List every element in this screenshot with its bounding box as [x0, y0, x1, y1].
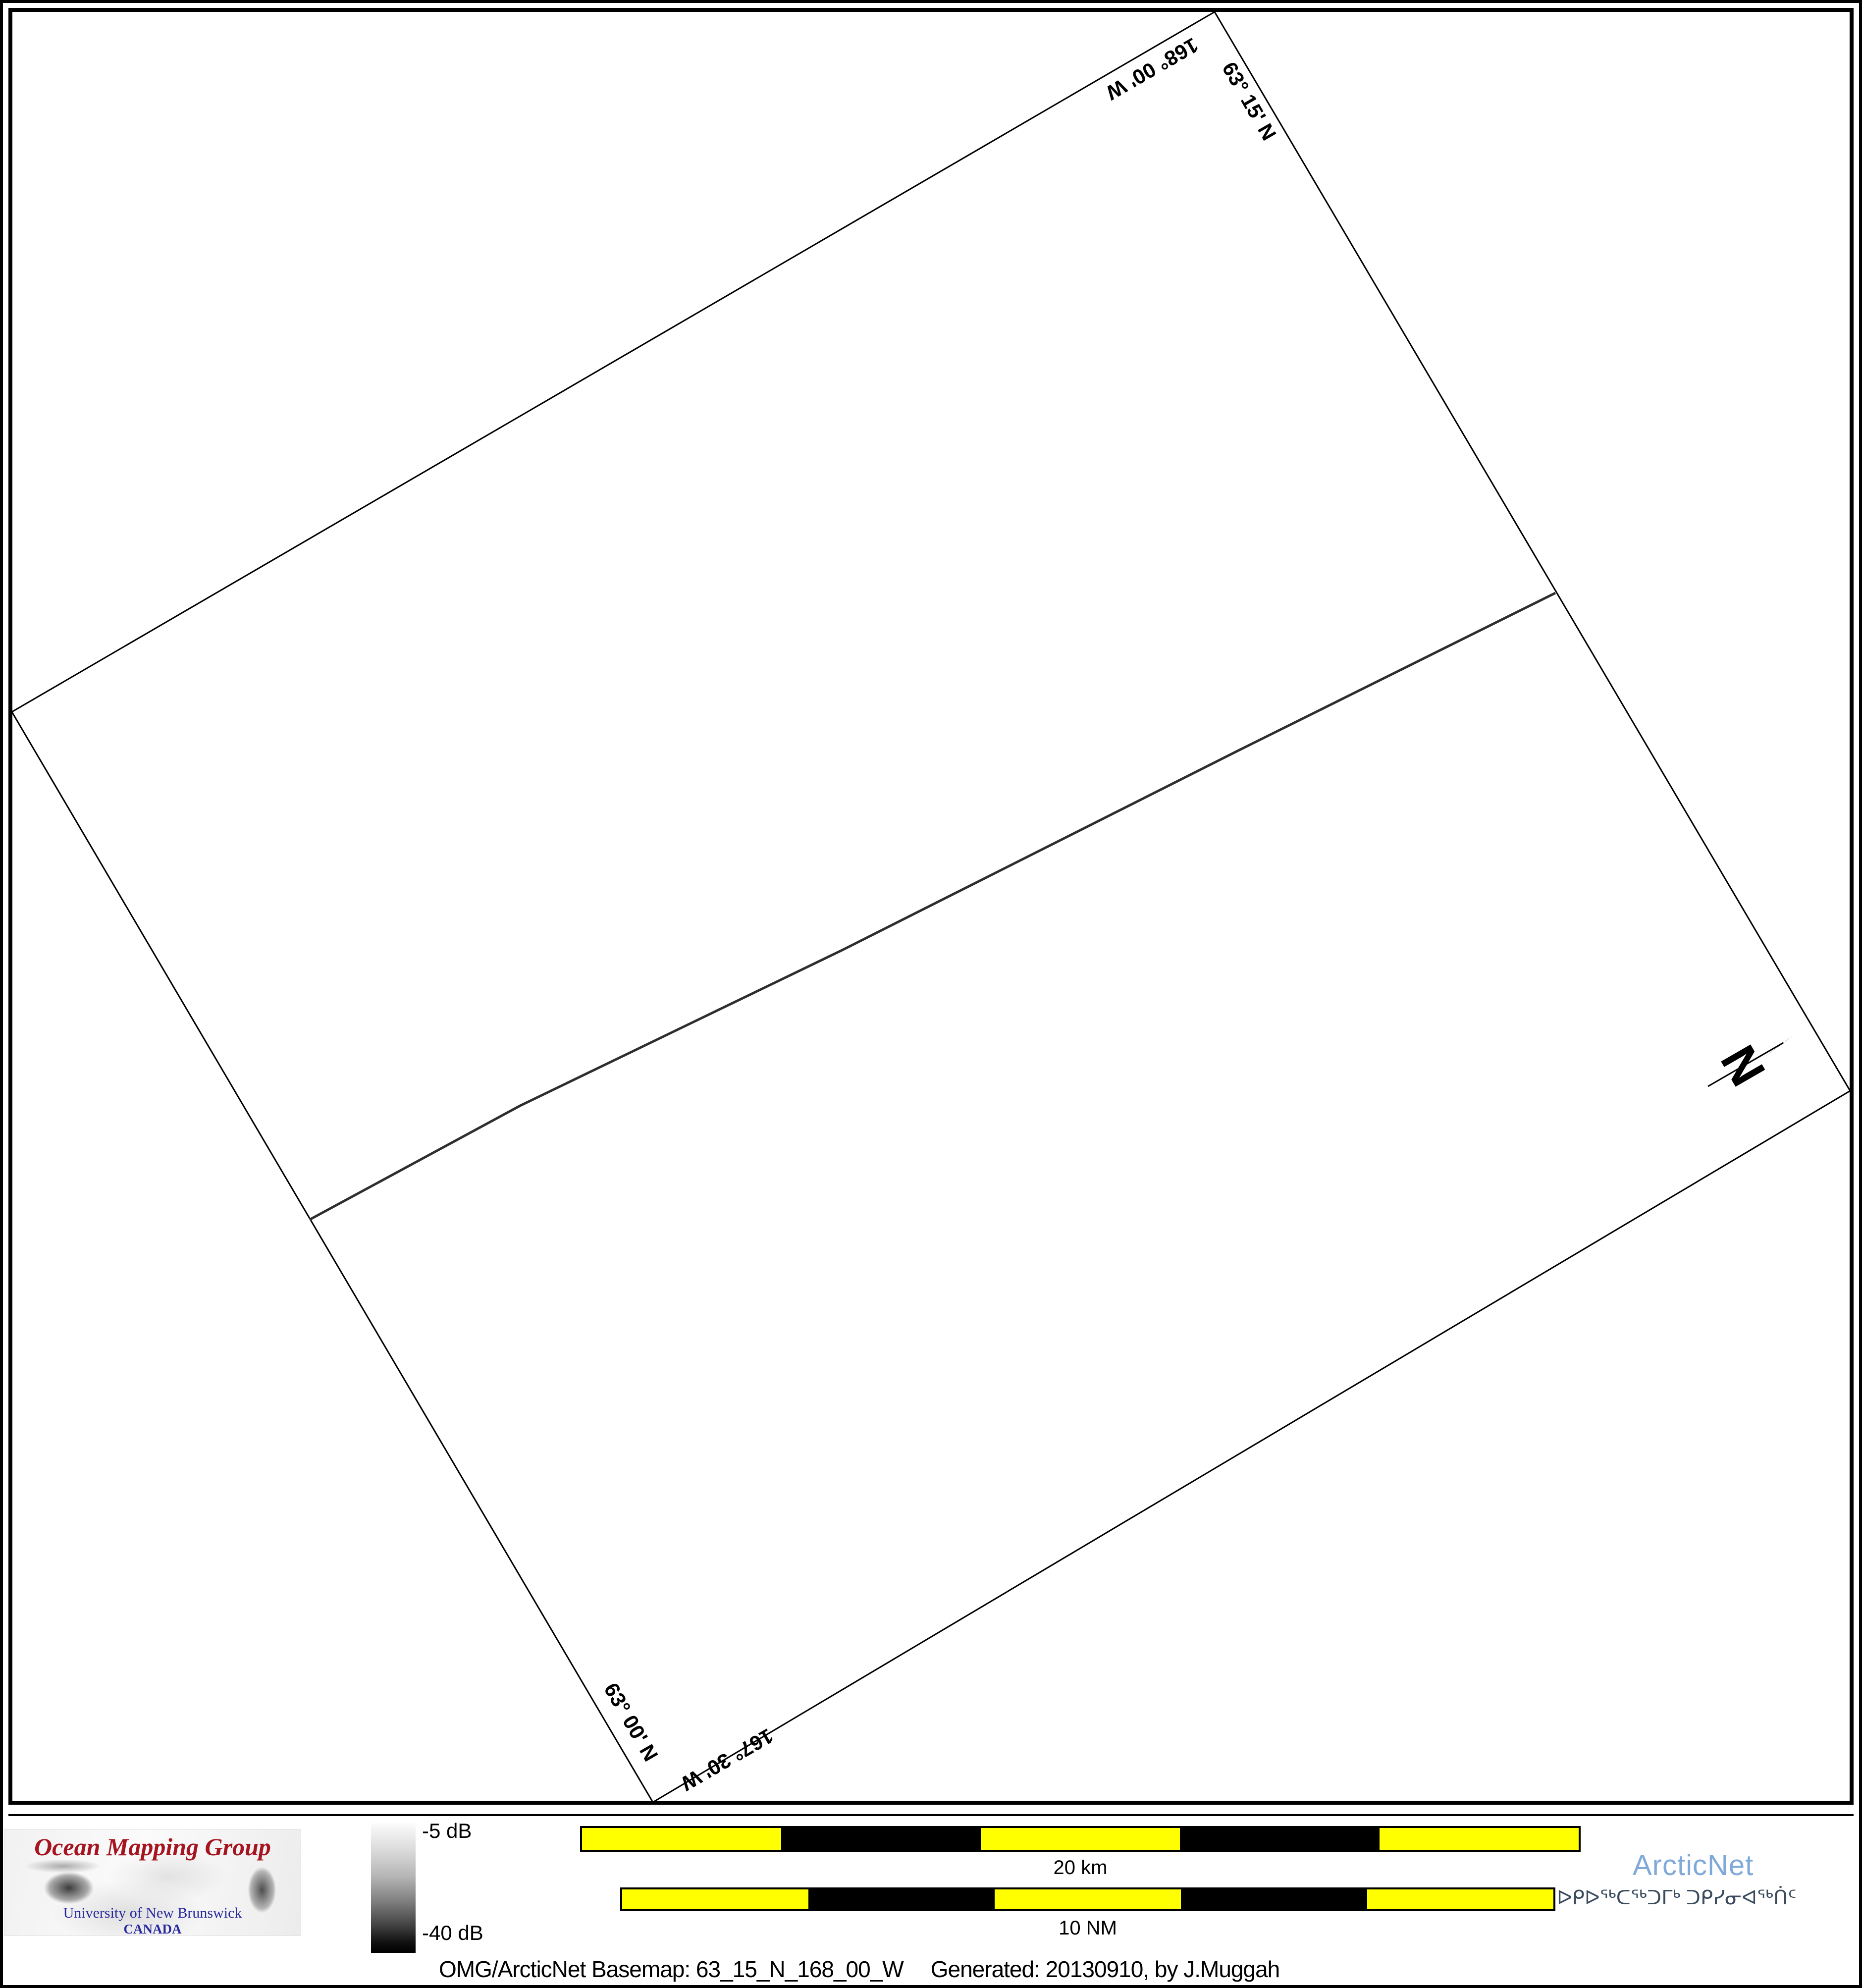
- scalebar-segment: [781, 1828, 980, 1850]
- scalebar-segment: [1380, 1828, 1579, 1850]
- scalebar-nm-label: 10 NM: [620, 1917, 1555, 1939]
- scalebar-segment: [995, 1889, 1181, 1909]
- caption-generated: Generated: 20130910, by J.Muggah: [931, 1956, 1280, 1982]
- arcticnet-logo: ArcticNet: [1633, 1849, 1754, 1882]
- backscatter-colorbar: [371, 1823, 416, 1953]
- basemap-page: 63° 15' N 168° 00' W 63° 00' N 167° 30' …: [0, 0, 1862, 1988]
- scalebar-segment: [622, 1889, 808, 1909]
- north-arrow-label: N: [1710, 1036, 1776, 1095]
- scalebar-segment: [1367, 1889, 1553, 1909]
- colorbar-min-label: -40 dB: [422, 1921, 483, 1945]
- scalebar-segment: [582, 1828, 781, 1850]
- arcticnet-inuktitut-text: ᐅᑭᐅᖅᑕᖅᑐᒥᒃ ᑐᑭᓯᓂᐊᖅᑏᑦ: [1557, 1886, 1797, 1909]
- omg-logo-canada: CANADA: [4, 1922, 301, 1937]
- omg-logo: Ocean Mapping Group University of New Br…: [4, 1829, 301, 1936]
- survey-track-line: [310, 593, 1555, 1220]
- scalebar-segment: [808, 1889, 995, 1909]
- scalebar-nautical-miles: [620, 1887, 1555, 1911]
- north-arrow-icon: N: [1708, 1035, 1793, 1095]
- corner-label-bottom-lon: 167° 30' W: [677, 1724, 777, 1795]
- scalebar-segment: [981, 1828, 1180, 1850]
- omg-logo-university: University of New Brunswick: [4, 1905, 301, 1922]
- caption-basemap-id: OMG/ArcticNet Basemap: 63_15_N_168_00_W: [439, 1956, 904, 1982]
- corner-label-bottom-lat: 63° 00' N: [599, 1679, 663, 1765]
- map-canvas: 63° 15' N 168° 00' W 63° 00' N 167° 30' …: [0, 0, 1862, 1988]
- legend-separator-rule: [8, 1814, 1854, 1816]
- scalebar-kilometers: [580, 1826, 1581, 1852]
- map-boundary-polygon: [12, 12, 1850, 1802]
- scalebar-km-label: 20 km: [580, 1857, 1581, 1879]
- colorbar-max-label: -5 dB: [422, 1819, 472, 1843]
- omg-logo-title: Ocean Mapping Group: [4, 1832, 301, 1861]
- scalebar-segment: [1180, 1828, 1379, 1850]
- scalebar-segment: [1181, 1889, 1367, 1909]
- basemap-caption: OMG/ArcticNet Basemap: 63_15_N_168_00_WG…: [439, 1956, 1279, 1983]
